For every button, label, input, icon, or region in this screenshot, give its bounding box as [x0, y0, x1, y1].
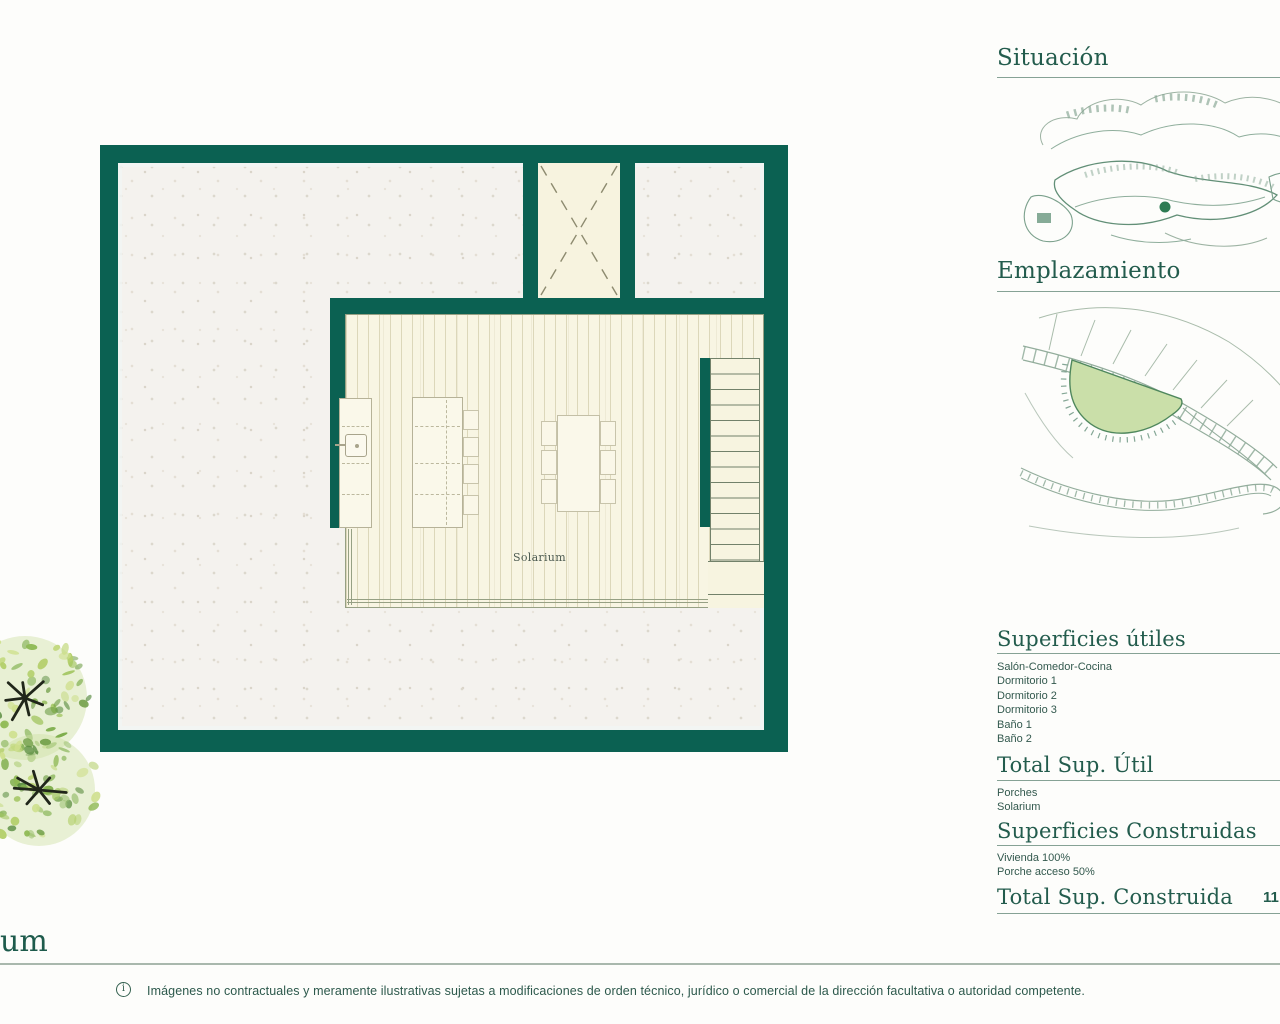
- bar-stool: [463, 464, 479, 484]
- dining-chair: [600, 421, 616, 446]
- dining-chair: [541, 421, 557, 446]
- wall-vertical-left-of-skylight: [523, 163, 538, 298]
- tree-illustration: [0, 608, 110, 858]
- skylight-void: [538, 163, 620, 298]
- emplazamiento-rule: [997, 291, 1280, 292]
- kitchen-island-bar: [412, 397, 463, 528]
- surface-item: Porches: [997, 786, 1040, 800]
- surface-item: Solarium: [997, 800, 1040, 814]
- superficies-construidas-list: Vivienda 100% Porche acceso 50%: [997, 851, 1095, 880]
- dining-table: [557, 415, 600, 512]
- total-sup-construida-title: Total Sup. Construida: [997, 885, 1233, 909]
- disclaimer-text: Imágenes no contractuales y meramente il…: [147, 984, 1085, 998]
- dining-chair: [600, 450, 616, 475]
- wall-horizontal-above-solarium: [330, 298, 764, 314]
- surface-item: Dormitorio 3: [997, 703, 1112, 717]
- surface-item: Baño 2: [997, 732, 1112, 746]
- stair-rail-wall: [700, 358, 710, 527]
- superficies-construidas-rule: [997, 845, 1280, 846]
- superficies-construidas-title: Superficies Construidas: [997, 819, 1257, 843]
- footer-divider: [0, 963, 1280, 965]
- surface-item: Vivienda 100%: [997, 851, 1095, 865]
- floor-plan: Solarium: [100, 145, 788, 752]
- situacion-rule: [997, 77, 1280, 78]
- stair-landing: [708, 561, 764, 608]
- skylight-x-icon: [538, 163, 620, 298]
- sink-icon: [345, 434, 367, 457]
- bar-stool: [463, 495, 479, 515]
- surface-item: Salón-Comedor-Cocina: [997, 660, 1112, 674]
- total-sup-util-list: Porches Solarium: [997, 786, 1040, 815]
- superficies-utiles-title: Superficies útiles: [997, 627, 1186, 651]
- dining-chair: [541, 479, 557, 504]
- info-icon: i: [116, 982, 131, 997]
- total-sup-construida-rule: [997, 913, 1280, 914]
- floor-plan-interior: Solarium: [118, 163, 764, 730]
- bar-stool: [463, 410, 479, 430]
- dining-chair: [600, 479, 616, 504]
- superficies-utiles-rule: [997, 653, 1280, 654]
- total-sup-construida-value: 11: [1263, 889, 1279, 906]
- surface-item: Baño 1: [997, 718, 1112, 732]
- stairs: [710, 358, 760, 561]
- total-sup-util-rule: [997, 780, 1280, 781]
- situacion-map: [1015, 85, 1280, 257]
- situacion-title: Situación: [997, 45, 1109, 71]
- surface-item: Dormitorio 1: [997, 674, 1112, 688]
- kitchen-island-sink: [339, 398, 372, 528]
- total-sup-util-title: Total Sup. Útil: [997, 753, 1154, 777]
- emplazamiento-map: [1015, 298, 1280, 548]
- superficies-utiles-list: Salón-Comedor-Cocina Dormitorio 1 Dormit…: [997, 660, 1112, 746]
- surface-item: Dormitorio 2: [997, 689, 1112, 703]
- page-title-clipped: um: [0, 924, 48, 959]
- dining-chair: [541, 450, 557, 475]
- solarium-label: Solarium: [513, 551, 566, 564]
- emplazamiento-title: Emplazamiento: [997, 258, 1181, 284]
- bar-stool: [463, 437, 479, 457]
- surface-item: Porche acceso 50%: [997, 865, 1095, 879]
- brochure-page: Solarium Situación Emplazamiento: [0, 0, 1280, 1024]
- wall-vertical-right-of-skylight: [620, 163, 635, 298]
